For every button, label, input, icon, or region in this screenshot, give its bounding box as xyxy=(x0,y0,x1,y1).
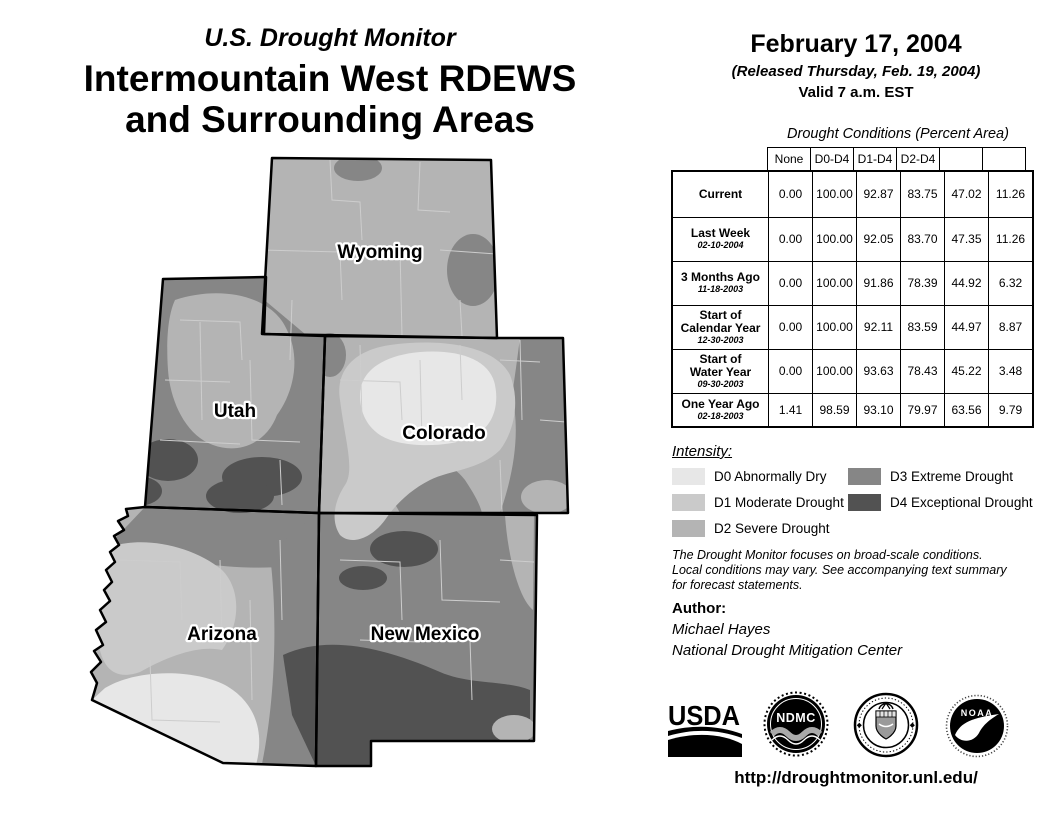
valid-time: Valid 7 a.m. EST xyxy=(660,84,1052,101)
drought-map: Wyoming Utah Colorado Arizona New Mexico xyxy=(85,148,665,810)
drought-monitor-page: U.S. Drought Monitor Intermountain West … xyxy=(0,0,1056,816)
monitor-title: U.S. Drought Monitor xyxy=(25,24,635,52)
cell-value: 45.22 xyxy=(945,349,989,393)
col-header-d0-d4: D0-D4 xyxy=(810,147,854,171)
map-date: February 17, 2004 xyxy=(660,30,1052,59)
author-name: Michael Hayes xyxy=(672,621,1050,638)
table-row: Current 0.00 100.00 92.87 83.75 47.02 11… xyxy=(672,171,1033,217)
legend-label: D3 Extreme Drought xyxy=(890,469,1013,484)
cell-value: 0.00 xyxy=(769,171,813,217)
table-row: Last Week02-10-2004 0.00 100.00 92.05 83… xyxy=(672,217,1033,261)
cell-value: 92.87 xyxy=(857,171,901,217)
usda-logo-text: USDA xyxy=(668,700,740,731)
drought-conditions-table: Current 0.00 100.00 92.87 83.75 47.02 11… xyxy=(671,170,1034,428)
legend-item-d0: D0 Abnormally Dry xyxy=(672,468,848,485)
row-date: 11-18-2003 xyxy=(673,284,768,295)
cell-value: 100.00 xyxy=(813,171,857,217)
usda-logo: USDA xyxy=(668,700,742,757)
cell-value: 3.48 xyxy=(989,349,1034,393)
author-block: Author: Michael Hayes National Drought M… xyxy=(672,600,1050,659)
cell-value: 9.79 xyxy=(989,393,1034,427)
shade-d3-wyoming-east xyxy=(447,234,499,306)
cell-value: 93.63 xyxy=(857,349,901,393)
cell-value: 100.00 xyxy=(813,349,857,393)
table-row: Start of Water Year09-30-2003 0.00 100.0… xyxy=(672,349,1033,393)
row-date: 12-30-2003 xyxy=(673,335,768,346)
agency-logos: USDA NDMC xyxy=(660,688,1052,762)
table-row: Start of Calendar Year12-30-2003 0.00 10… xyxy=(672,305,1033,349)
legend-label: D2 Severe Drought xyxy=(714,521,830,536)
cell-value: 83.70 xyxy=(901,217,945,261)
table-row: One Year Ago02-18-2003 1.41 98.59 93.10 … xyxy=(672,393,1033,427)
cell-value: 0.00 xyxy=(769,261,813,305)
row-date: 09-30-2003 xyxy=(673,379,768,390)
legend-item-d3: D3 Extreme Drought xyxy=(848,468,1033,485)
cell-value: 11.26 xyxy=(989,217,1034,261)
cell-value: 78.43 xyxy=(901,349,945,393)
cell-value: 92.11 xyxy=(857,305,901,349)
row-label: 3 Months Ago xyxy=(673,271,768,284)
shade-d2-colorado-se xyxy=(521,480,573,514)
legend-label: D1 Moderate Drought xyxy=(714,495,844,510)
region-title-line2: and Surrounding Areas xyxy=(25,99,635,140)
cell-value: 44.97 xyxy=(945,305,989,349)
author-heading: Author: xyxy=(672,600,1050,617)
ndmc-logo-text: NDMC xyxy=(776,711,816,725)
cell-value: 0.00 xyxy=(769,305,813,349)
col-header-d3-d4: D3-D4 xyxy=(939,147,983,171)
cell-value: 0.00 xyxy=(769,217,813,261)
state-label-utah: Utah xyxy=(214,401,256,422)
table-title: Drought Conditions (Percent Area) xyxy=(742,126,1054,142)
cell-value: 83.75 xyxy=(901,171,945,217)
legend-item-d1: D1 Moderate Drought xyxy=(672,494,848,511)
date-block: February 17, 2004 (Released Thursday, Fe… xyxy=(660,30,1052,101)
cell-value: 11.26 xyxy=(989,171,1034,217)
cell-value: 44.92 xyxy=(945,261,989,305)
col-header-d2-d4: D2-D4 xyxy=(896,147,940,171)
cell-value: 98.59 xyxy=(813,393,857,427)
cell-value: 1.41 xyxy=(769,393,813,427)
shade-d3-colorado-nw xyxy=(314,333,346,377)
state-label-arizona: Arizona xyxy=(187,624,257,645)
legend-label: D4 Exceptional Drought xyxy=(890,495,1033,510)
d3-swatch xyxy=(848,468,881,485)
cell-value: 79.97 xyxy=(901,393,945,427)
cell-value: 92.05 xyxy=(857,217,901,261)
table-row: 3 Months Ago11-18-2003 0.00 100.00 91.86… xyxy=(672,261,1033,305)
col-header-d4: D4 xyxy=(982,147,1026,171)
cell-value: 63.56 xyxy=(945,393,989,427)
col-header-d1-d4: D1-D4 xyxy=(853,147,897,171)
col-header-none: None xyxy=(767,147,811,171)
footer-url: http://droughtmonitor.unl.edu/ xyxy=(660,768,1052,788)
cell-value: 8.87 xyxy=(989,305,1034,349)
cell-value: 6.32 xyxy=(989,261,1034,305)
legend-title: Intensity: xyxy=(672,443,1056,460)
legend-item-d2: D2 Severe Drought xyxy=(672,520,848,537)
d2-swatch xyxy=(672,520,705,537)
legend-label: D0 Abnormally Dry xyxy=(714,469,827,484)
d4-swatch xyxy=(848,494,881,511)
cell-value: 100.00 xyxy=(813,261,857,305)
disclaimer-text: The Drought Monitor focuses on broad-sca… xyxy=(672,548,1050,593)
row-label: Start of Calendar Year xyxy=(673,309,768,335)
map-title-block: U.S. Drought Monitor Intermountain West … xyxy=(25,24,635,141)
table-column-headers: None D0-D4 D1-D4 D2-D4 D3-D4 D4 xyxy=(767,147,1026,171)
cell-value: 47.02 xyxy=(945,171,989,217)
cell-value: 100.00 xyxy=(813,305,857,349)
cell-value: 0.00 xyxy=(769,349,813,393)
row-label: Start of Water Year xyxy=(673,353,768,379)
state-label-colorado: Colorado xyxy=(402,423,485,444)
row-date: 02-10-2004 xyxy=(673,240,768,251)
cell-value: 78.39 xyxy=(901,261,945,305)
d1-swatch xyxy=(672,494,705,511)
region-title-line1: Intermountain West RDEWS xyxy=(25,58,635,99)
noaa-logo: NOAA xyxy=(947,696,1008,757)
cell-value: 47.35 xyxy=(945,217,989,261)
cell-value: 93.10 xyxy=(857,393,901,427)
legend-item-d4: D4 Exceptional Drought xyxy=(848,494,1033,511)
shade-d4-border-center xyxy=(206,479,274,513)
row-date: 02-18-2003 xyxy=(673,411,768,422)
ndmc-logo: NDMC xyxy=(765,693,828,756)
shade-d2-new-mexico-se xyxy=(492,715,536,743)
state-label-new-mexico: New Mexico xyxy=(371,624,480,645)
d0-swatch xyxy=(672,468,705,485)
cell-value: 100.00 xyxy=(813,217,857,261)
intensity-legend: Intensity: D0 Abnormally Dry D1 Moderate… xyxy=(672,443,1056,546)
cell-value: 83.59 xyxy=(901,305,945,349)
shade-d4-new-mexico-center xyxy=(339,566,387,590)
released-date: (Released Thursday, Feb. 19, 2004) xyxy=(660,63,1052,80)
row-label: One Year Ago xyxy=(673,398,768,411)
shade-d4-border-west xyxy=(112,476,162,506)
row-label: Current xyxy=(673,188,768,201)
commerce-seal-logo xyxy=(855,694,917,756)
author-org: National Drought Mitigation Center xyxy=(672,642,1050,659)
cell-value: 91.86 xyxy=(857,261,901,305)
state-label-wyoming: Wyoming xyxy=(337,242,422,263)
row-label: Last Week xyxy=(673,227,768,240)
